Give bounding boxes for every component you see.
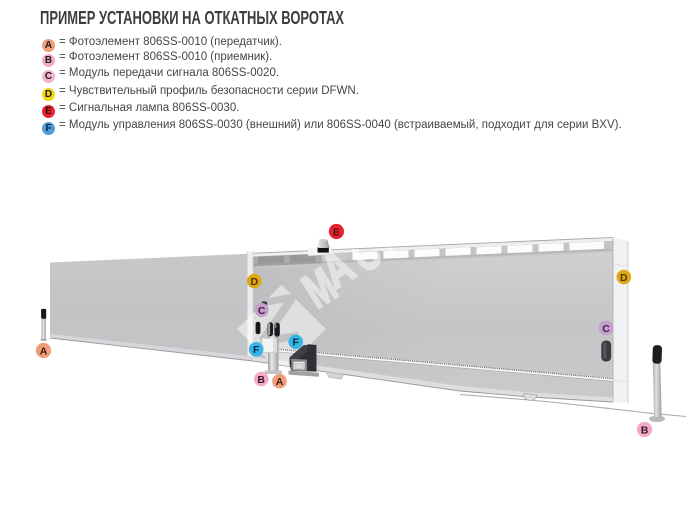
svg-text:C: C (258, 305, 266, 317)
svg-text:B: B (257, 374, 265, 386)
svg-text:A: A (40, 345, 48, 357)
svg-text:D: D (620, 272, 628, 284)
svg-text:C: C (602, 323, 610, 335)
svg-text:E: E (333, 226, 340, 238)
svg-text:F: F (253, 344, 260, 356)
svg-text:D: D (251, 276, 259, 288)
svg-text:F: F (292, 337, 299, 349)
svg-text:A: A (276, 376, 284, 388)
svg-text:B: B (641, 424, 649, 436)
